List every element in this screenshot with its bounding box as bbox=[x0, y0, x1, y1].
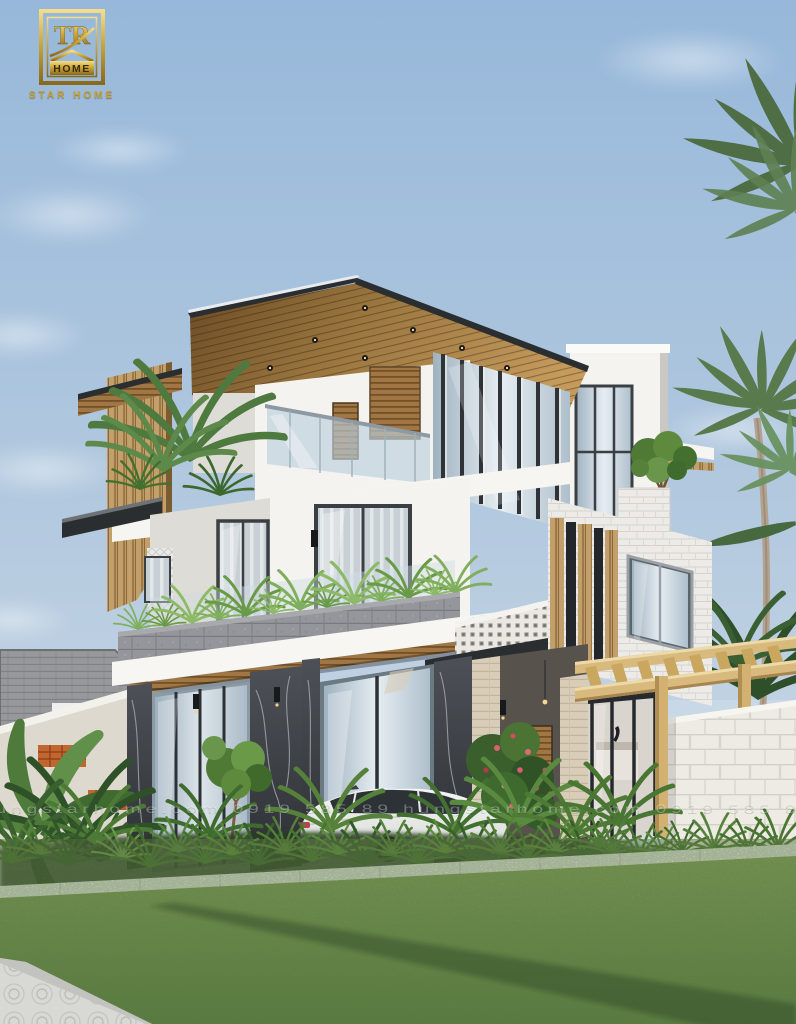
watermark: hungstarhome.com 0919 585 89 hungstarhom… bbox=[0, 802, 796, 817]
scene-canvas: hungstarhome.com 0919 585 89 hungstarhom… bbox=[0, 0, 796, 1024]
watermark-text: hungstarhome.com 0919 585 89 hungstarhom… bbox=[0, 802, 796, 816]
brand-logo: TR HOME STAR HOME bbox=[24, 8, 120, 101]
pendant-light bbox=[543, 700, 548, 705]
right-wing-window bbox=[628, 556, 692, 652]
architectural-render: hungstarhome.com 0919 585 89 hungstarhom… bbox=[0, 0, 796, 1024]
brand-emblem: TR HOME bbox=[38, 8, 106, 88]
logo-caption: STAR HOME bbox=[29, 90, 115, 101]
logo-home-label: HOME bbox=[53, 63, 91, 75]
